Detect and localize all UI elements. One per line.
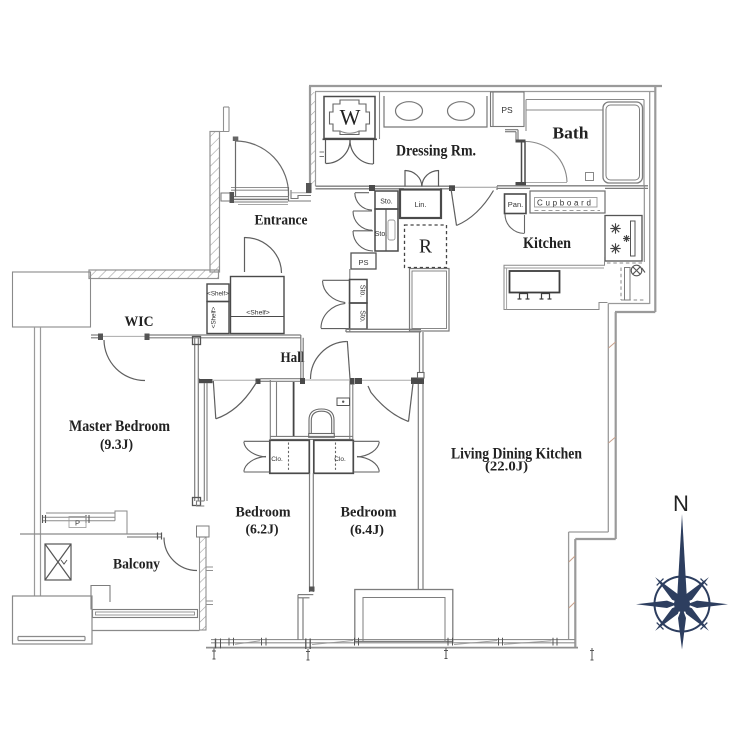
svg-text:(9.3J): (9.3J) <box>100 437 133 453</box>
svg-text:Bedroom: Bedroom <box>236 505 291 521</box>
svg-text:Kitchen: Kitchen <box>523 235 571 252</box>
svg-text:<Shelf>: <Shelf> <box>211 306 218 328</box>
svg-text:(22.0J): (22.0J) <box>485 460 528 475</box>
svg-text:Dressing Rm.: Dressing Rm. <box>396 143 476 160</box>
svg-text:Cupboard: Cupboard <box>537 199 591 208</box>
svg-text:Bedroom: Bedroom <box>341 505 397 521</box>
svg-text:Sto.: Sto. <box>359 310 366 323</box>
svg-text:R: R <box>419 237 432 258</box>
svg-text:Lin.: Lin. <box>414 200 426 209</box>
svg-text:Sto.: Sto. <box>380 199 393 206</box>
svg-text:<Shelf>: <Shelf> <box>207 291 229 298</box>
svg-text:Clo.: Clo. <box>334 456 346 463</box>
svg-text:<Shelf>: <Shelf> <box>246 310 269 317</box>
svg-text:(6.4J): (6.4J) <box>350 523 384 538</box>
svg-text:Entrance: Entrance <box>255 213 308 229</box>
svg-text:WIC: WIC <box>125 314 154 330</box>
svg-text:Master Bedroom: Master Bedroom <box>69 418 170 435</box>
svg-text:W: W <box>340 105 361 130</box>
svg-text:Sto.: Sto. <box>359 285 366 298</box>
svg-text:PS: PS <box>358 258 368 267</box>
svg-text:(6.2J): (6.2J) <box>246 523 279 538</box>
svg-text:PS: PS <box>501 105 513 115</box>
svg-text:Bath: Bath <box>553 124 589 143</box>
svg-text:Balcony: Balcony <box>113 557 161 573</box>
svg-text:Clo.: Clo. <box>271 456 283 463</box>
svg-text:N: N <box>673 491 689 516</box>
svg-text:Sto.: Sto. <box>375 231 388 238</box>
svg-text:P: P <box>75 519 80 528</box>
svg-text:Pan.: Pan. <box>508 200 523 209</box>
